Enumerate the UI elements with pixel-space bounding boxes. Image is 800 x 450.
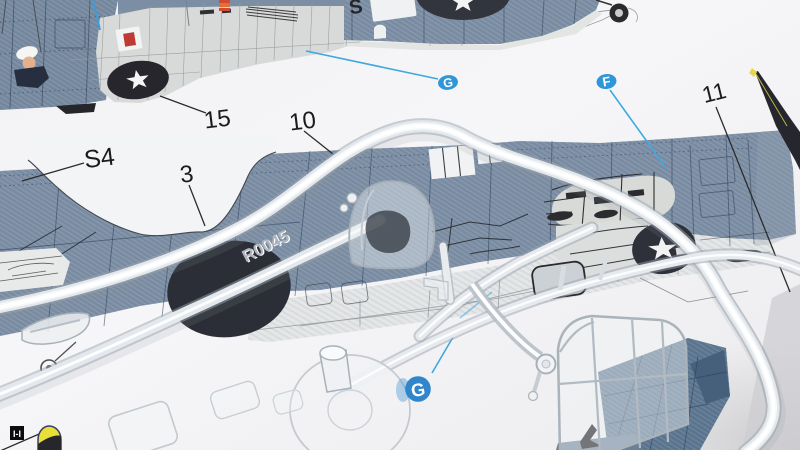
svg-text:S: S	[348, 0, 365, 19]
svg-text:10: 10	[288, 107, 318, 137]
svg-text:S4: S4	[83, 143, 117, 175]
svg-text:I-I: I-I	[13, 429, 21, 439]
svg-text:15: 15	[202, 105, 232, 135]
